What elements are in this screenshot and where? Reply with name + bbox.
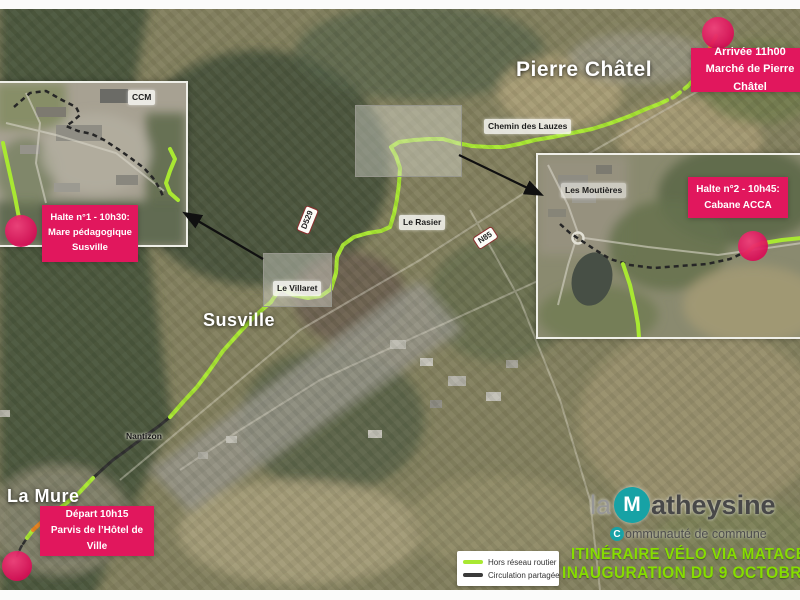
matheysine-m-icon: M [614,487,650,523]
legend-shared-label: Circulation partagée [488,571,560,580]
label-susville: Susville [203,310,275,331]
shared-line-swatch [463,573,483,577]
logo-wordmark: la M atheysine [590,485,776,525]
logo-name: atheysine [651,490,776,521]
label-les-moutieres: Les Moutières [561,183,626,198]
halte1-line3: Susville [72,241,108,256]
callout-depart: Départ 10h15 Parvis de l’Hôtel de Ville [40,506,154,556]
start-marker-la-mure [2,551,32,581]
arrivee-line2: Marché de Pierre Châtel [691,61,800,96]
halte2-line2: Cabane ACCA [704,198,771,214]
arrow-to-ccm-inset [186,214,263,259]
callout-halte1: Halte n°1 - 10h30: Mare pédagogique Susv… [42,205,138,262]
label-pierre-chatel: Pierre Châtel [516,58,652,82]
event-title-line1: ITINÉRAIRE VÉLO VIA MATACEN [571,545,800,563]
halte2-marker [738,231,768,261]
label-le-rasier: Le Rasier [399,215,445,230]
logo-subtitle-text: ommunauté de commune [625,527,767,541]
callout-arrivee: Arrivée 11h00 Marché de Pierre Châtel [691,48,800,92]
map-screenshot: Pierre Châtel Susville La Mure Le Rasier… [0,0,800,600]
depart-line1: Départ 10h15 [66,507,129,523]
top-white-strip [0,0,800,9]
halte1-marker [5,215,37,247]
bottom-white-strip [0,590,800,600]
halte1-line1: Halte n°1 - 10h30: [50,211,129,226]
label-chemin-des-lauzes: Chemin des Lauzes [484,119,571,134]
depart-line2: Parvis de l’Hôtel de Ville [40,523,154,555]
label-le-villaret: Le Villaret [273,281,321,296]
chemin-line2: des Lauzes [522,121,568,131]
legend-offroad-label: Hors réseau routier [488,558,556,567]
label-ccm: CCM [128,90,155,105]
arrivee-line1: Arrivée 11h00 [714,44,786,62]
chemin-line1: Chemin [488,121,519,131]
event-title-line2: INAUGURATION DU 9 OCTOBRE 20 [562,564,800,583]
label-nantizon: Nantizon [126,431,162,441]
matheysine-logo: la M atheysine C ommunauté de commune [590,485,776,541]
label-la-mure: La Mure [7,486,80,507]
offroad-line-swatch [463,560,483,564]
arrow-to-moutieres-inset [459,155,540,194]
moutieres-line1: Les [565,185,580,195]
moutieres-line2: Moutières [582,185,622,195]
logo-prefix: la [590,490,611,521]
legend-row-offroad: Hors réseau routier [463,558,553,567]
communaute-c-icon: C [610,527,624,541]
callout-halte2: Halte n°2 - 10h45: Cabane ACCA [688,177,788,218]
logo-subtitle: C ommunauté de commune [610,527,776,541]
map-legend: Hors réseau routier Circulation partagée [457,551,559,586]
legend-row-shared: Circulation partagée [463,571,553,580]
halte2-line1: Halte n°2 - 10h45: [696,182,779,198]
halte1-line2: Mare pédagogique [48,226,132,241]
